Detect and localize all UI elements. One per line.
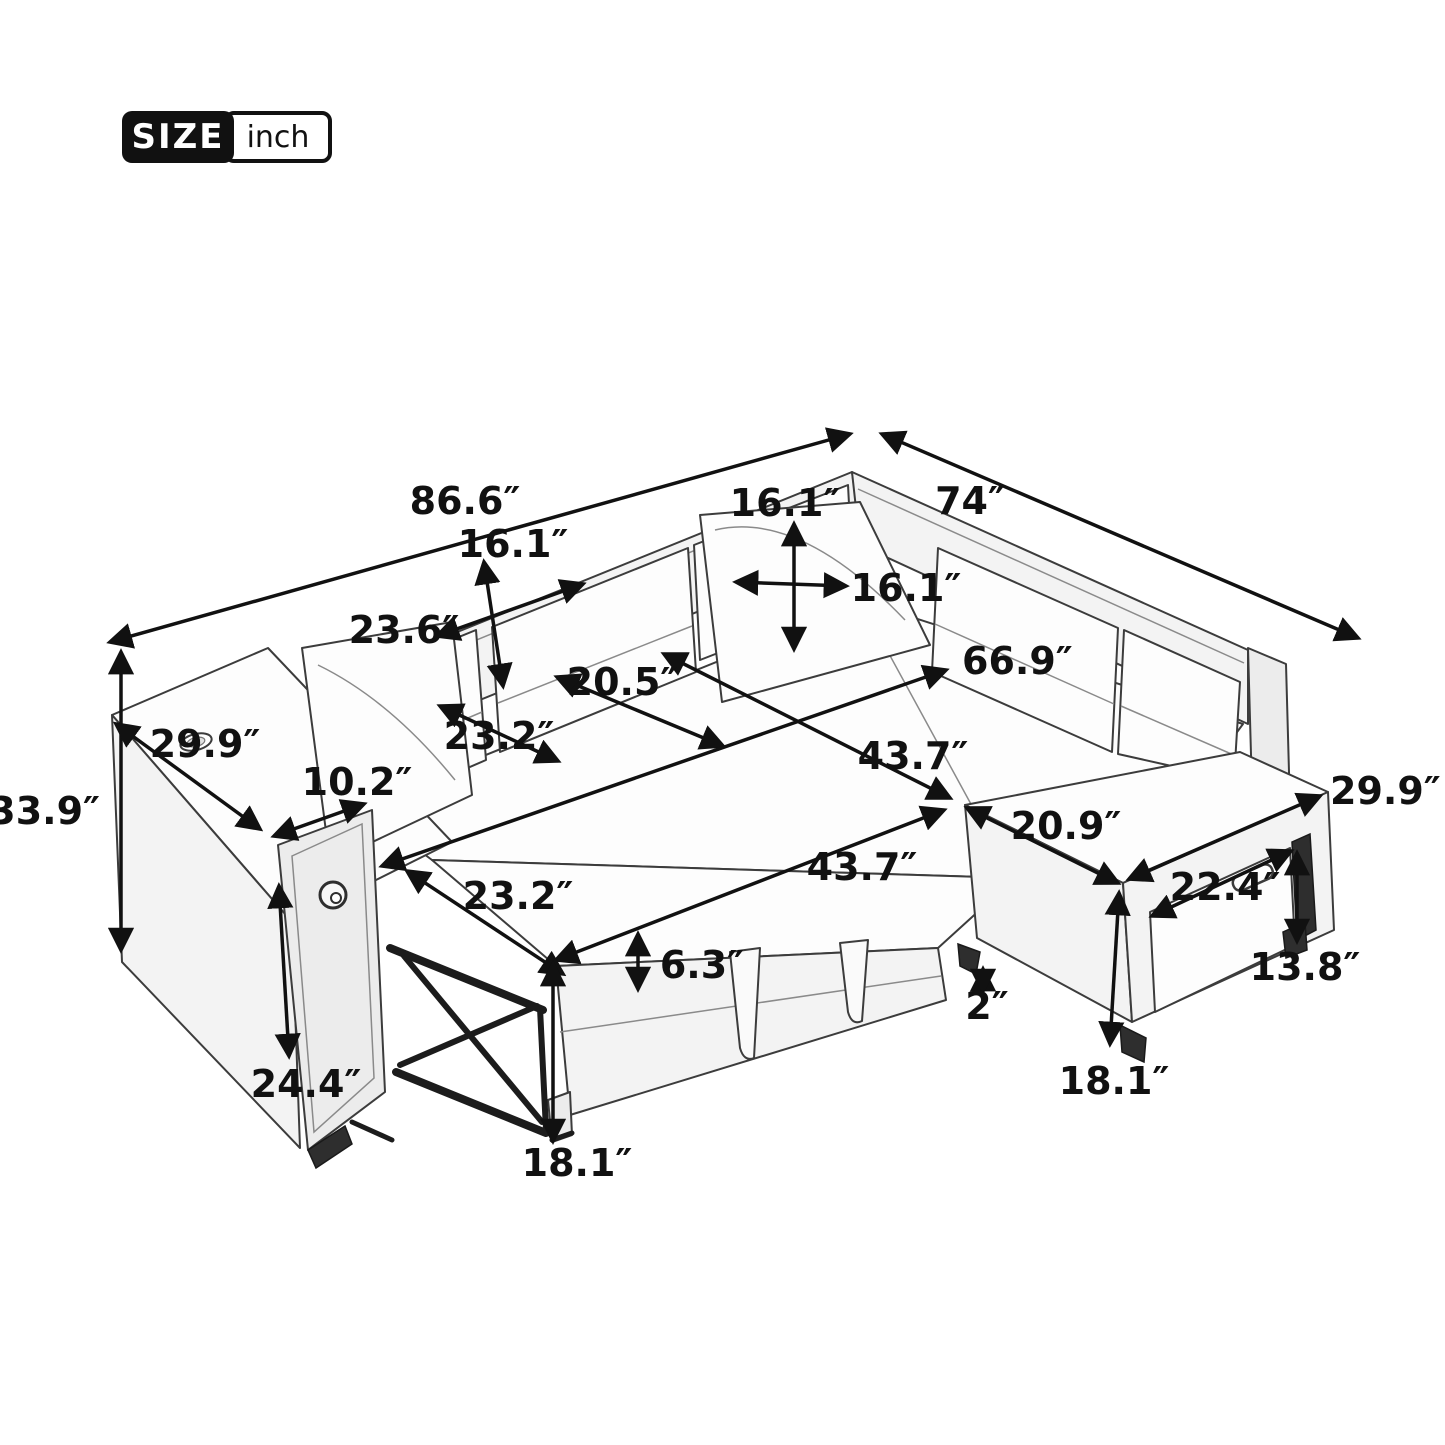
dim-label-back-cushion-width: 23.6″ (349, 608, 460, 652)
ottoman-leg (1120, 1025, 1146, 1062)
size-label: SIZE (122, 111, 234, 163)
dim-label-bed-width: 23.2″ (463, 874, 574, 918)
armrest-knob-center (331, 893, 341, 903)
dim-label-seat-depth: 20.5″ (567, 660, 678, 704)
dim-label-ottoman-depth: 20.9″ (1011, 804, 1122, 848)
dim-label-seat-length-right: 66.9″ (962, 639, 1073, 683)
dim-label-pillow-width: 16.1″ (851, 566, 962, 610)
dim-label-total-length: 86.6″ (410, 479, 521, 523)
dim-label-ottoman-height: 18.1″ (1059, 1059, 1170, 1103)
dim-label-pillow-height: 16.1″ (730, 481, 841, 525)
dim-label-armrest-top-depth: 29.9″ (150, 722, 261, 766)
dimension-diagram: SIZE inch (0, 0, 1445, 1445)
dim-label-drawer-height: 13.8″ (1250, 945, 1361, 989)
sofa-line-drawing: 86.6″ 74″ 16.1″ 23.6″ 16.1″ 16.1″ 20.5″ … (0, 0, 1445, 1445)
dim-label-seat-cushion-width: 23.2″ (444, 714, 555, 758)
dim-label-back-cushion-height: 16.1″ (458, 522, 569, 566)
dim-label-bed-length: 43.7″ (807, 845, 918, 889)
ottoman-caster (958, 944, 980, 974)
dim-label-overall-height: 33.9″ (0, 789, 100, 833)
dim-label-mattress-thickness: 6.3″ (660, 943, 744, 987)
dim-label-caster-clearance: 2″ (965, 984, 1008, 1028)
dim-label-bed-height: 18.1″ (522, 1141, 633, 1185)
dim-label-total-depth: 74″ (935, 479, 1005, 523)
dim-label-armrest-panel-width: 10.2″ (302, 760, 413, 804)
dim-label-drawer-width: 22.4″ (1170, 865, 1281, 909)
dim-label-seat-length: 43.7″ (858, 734, 969, 778)
dim-label-armrest-front-height: 24.4″ (251, 1062, 362, 1106)
dim-label-ottoman-width: 29.9″ (1330, 769, 1441, 813)
